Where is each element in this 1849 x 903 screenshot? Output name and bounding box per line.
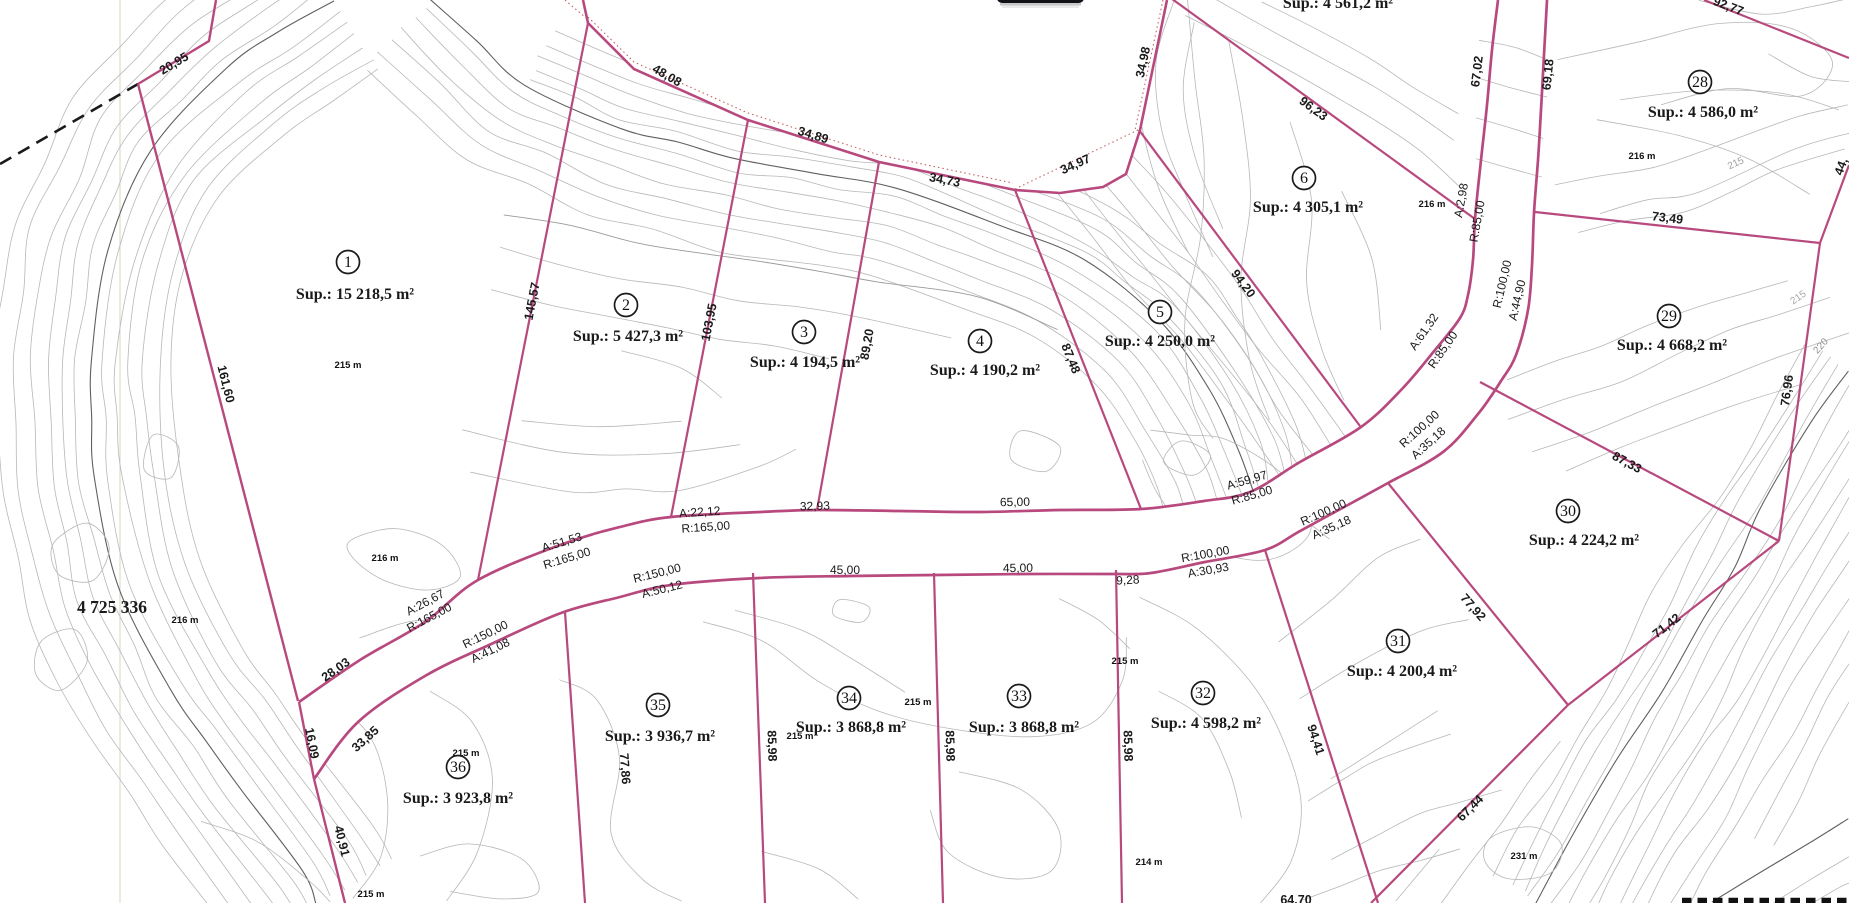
svg-text:A:22,12: A:22,12 (679, 504, 722, 521)
svg-text:45,00: 45,00 (1003, 561, 1034, 576)
svg-text:Sup.: 4 586,0 m²: Sup.: 4 586,0 m² (1648, 104, 1758, 121)
svg-text:64,70: 64,70 (1280, 893, 1311, 903)
svg-text:216 m: 216 m (1419, 199, 1446, 210)
svg-text:85,98: 85,98 (1120, 730, 1135, 762)
svg-text:215 m: 215 m (905, 697, 932, 708)
svg-text:Sup.: 4 561,2 m²: Sup.: 4 561,2 m² (1283, 0, 1393, 12)
svg-text:Sup.: 3 868,8 m²: Sup.: 3 868,8 m² (796, 719, 906, 736)
svg-text:32,93: 32,93 (800, 498, 831, 513)
svg-text:216 m: 216 m (1629, 151, 1656, 162)
svg-text:28: 28 (1692, 74, 1708, 91)
svg-text:215 m: 215 m (1112, 656, 1139, 667)
svg-text:1: 1 (344, 254, 352, 271)
svg-text:Sup.: 5 427,3 m²: Sup.: 5 427,3 m² (573, 328, 683, 345)
svg-text:Sup.: 3 936,7 m²: Sup.: 3 936,7 m² (605, 728, 715, 745)
svg-text:215 m: 215 m (358, 889, 385, 900)
svg-text:36: 36 (450, 759, 466, 776)
svg-text:3: 3 (800, 324, 808, 341)
svg-text:29: 29 (1661, 308, 1677, 325)
svg-text:45,00: 45,00 (830, 563, 860, 577)
svg-text:Sup.: 4 598,2 m²: Sup.: 4 598,2 m² (1151, 715, 1261, 732)
svg-text:85,98: 85,98 (764, 730, 779, 762)
svg-text:6: 6 (1300, 170, 1308, 187)
svg-text:Sup.: 4 200,4 m²: Sup.: 4 200,4 m² (1347, 663, 1457, 680)
svg-text:85,98: 85,98 (942, 730, 957, 762)
svg-text:65,00: 65,00 (1000, 495, 1031, 510)
svg-text:Sup.: 3 923,8 m²: Sup.: 3 923,8 m² (403, 790, 513, 807)
svg-text:34: 34 (841, 690, 857, 707)
svg-text:Sup.: 4 668,2 m²: Sup.: 4 668,2 m² (1617, 337, 1727, 354)
svg-text:5: 5 (1156, 304, 1164, 321)
svg-text:31: 31 (1390, 633, 1406, 650)
svg-text:214 m: 214 m (1136, 857, 1163, 868)
svg-text:216 m: 216 m (172, 615, 199, 626)
svg-text:Sup.: 4 194,5 m²: Sup.: 4 194,5 m² (750, 354, 860, 371)
svg-text:Sup.: 4 305,1 m²: Sup.: 4 305,1 m² (1253, 199, 1363, 216)
svg-text:Sup.: 4 190,2 m²: Sup.: 4 190,2 m² (930, 362, 1040, 379)
svg-text:216 m: 216 m (372, 553, 399, 564)
svg-text:9,28: 9,28 (1116, 572, 1140, 587)
svg-text:Sup.: 15 218,5 m²: Sup.: 15 218,5 m² (296, 286, 414, 303)
svg-text:2: 2 (622, 297, 630, 314)
svg-text:35: 35 (650, 697, 666, 714)
svg-text:Sup.: 3 868,8 m²: Sup.: 3 868,8 m² (969, 719, 1079, 736)
svg-text:33: 33 (1011, 688, 1027, 705)
svg-text:4: 4 (976, 333, 984, 350)
svg-text:32: 32 (1195, 685, 1211, 702)
svg-text:231 m: 231 m (1511, 851, 1538, 862)
svg-text:77,86: 77,86 (617, 753, 633, 785)
svg-text:4 725 336: 4 725 336 (77, 597, 147, 617)
svg-text:30: 30 (1560, 503, 1576, 520)
svg-text:Sup.: 4 224,2 m²: Sup.: 4 224,2 m² (1529, 532, 1639, 549)
svg-text:Sup.: 4 250,0 m²: Sup.: 4 250,0 m² (1105, 333, 1215, 350)
svg-text:215 m: 215 m (335, 360, 362, 371)
